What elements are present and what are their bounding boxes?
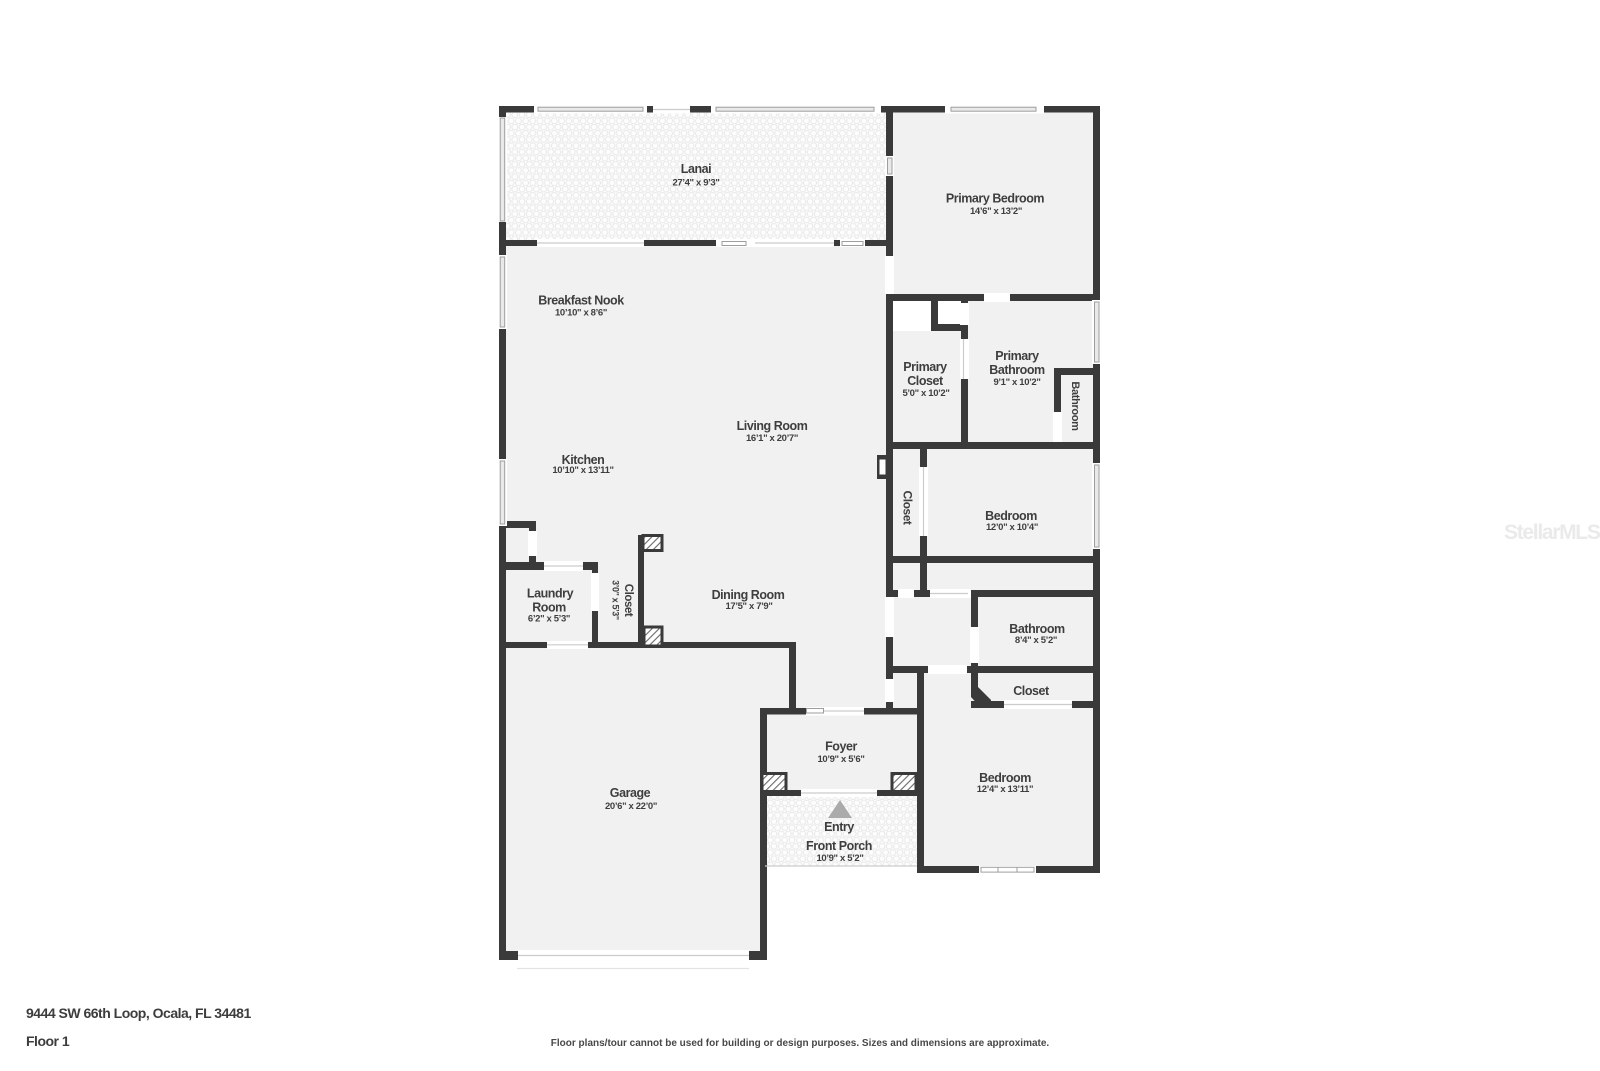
svg-text:9’1" x 10’2": 9’1" x 10’2" [993,377,1040,388]
svg-text:6’2" x 5’3": 6’2" x 5’3" [528,613,570,624]
svg-text:Bedroom: Bedroom [985,509,1037,523]
svg-text:Breakfast Nook: Breakfast Nook [538,294,624,308]
svg-text:Dining Room: Dining Room [712,588,785,602]
svg-text:Foyer: Foyer [825,739,857,753]
svg-text:27’4" x 9’3": 27’4" x 9’3" [672,178,719,189]
svg-text:10’9" x 5’6": 10’9" x 5’6" [817,754,864,765]
svg-text:17’5" x 7’9": 17’5" x 7’9" [725,601,772,612]
svg-text:Entry: Entry [824,820,854,834]
svg-text:Closet: Closet [622,584,634,617]
svg-text:Garage: Garage [610,786,651,800]
svg-text:Bedroom: Bedroom [979,771,1031,785]
svg-text:Primary: Primary [995,349,1039,363]
svg-text:20’6" x 22’0": 20’6" x 22’0" [605,801,657,812]
svg-text:Living Room: Living Room [737,419,808,433]
svg-text:12’0" x 10’4": 12’0" x 10’4" [986,522,1038,533]
svg-text:Bathroom: Bathroom [989,363,1045,377]
svg-text:Closet: Closet [1013,684,1050,698]
svg-text:10’9" x 5’2": 10’9" x 5’2" [816,853,863,864]
svg-text:3’0" x 5’3": 3’0" x 5’3" [611,580,621,620]
svg-text:Lanai: Lanai [681,162,711,176]
svg-text:Closet: Closet [901,491,915,525]
svg-text:Laundry: Laundry [527,587,574,601]
svg-text:5’0" x 10’2": 5’0" x 10’2" [902,388,949,399]
svg-text:Primary Bedroom: Primary Bedroom [946,191,1044,205]
svg-text:14’6" x 13’2": 14’6" x 13’2" [970,206,1022,217]
svg-text:Closet: Closet [907,374,944,388]
svg-text:10’10" x 13’11": 10’10" x 13’11" [552,465,613,476]
svg-text:Bathroom: Bathroom [1069,381,1081,431]
svg-text:10’10" x 8’6": 10’10" x 8’6" [555,308,607,319]
svg-text:Primary: Primary [903,360,947,374]
svg-text:8’4" x 5’2": 8’4" x 5’2" [1015,635,1057,646]
svg-text:16’1" x 20’7": 16’1" x 20’7" [746,433,798,444]
svg-text:12’4" x 13’11": 12’4" x 13’11" [977,784,1033,795]
svg-text:Front Porch: Front Porch [806,839,872,853]
